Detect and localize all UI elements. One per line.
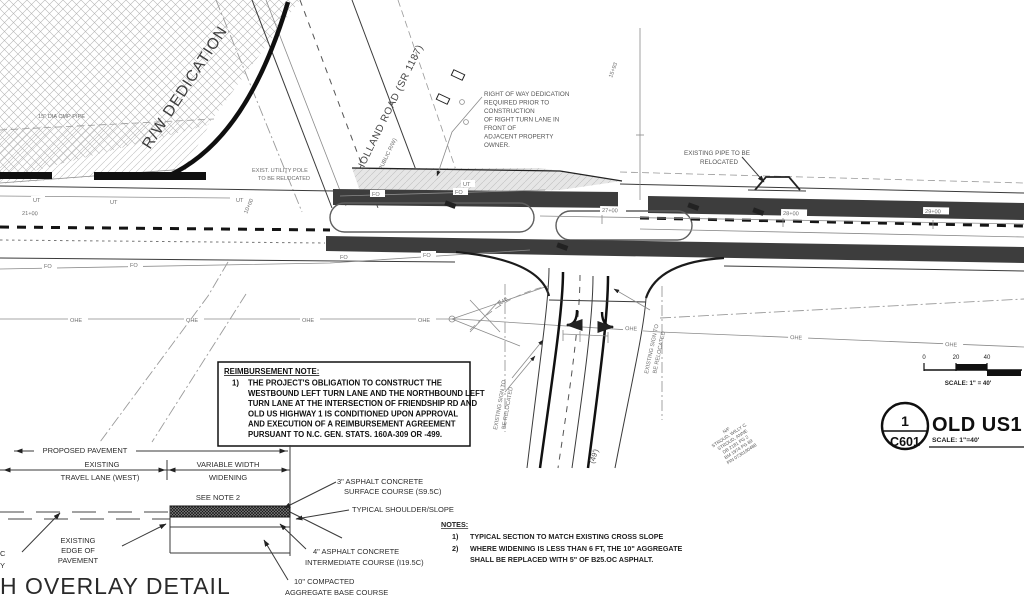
reimbursement-item-no: 1) [232, 379, 239, 388]
ohe-label: OHE [625, 326, 638, 333]
reimbursement-line-1: WESTBOUND LEFT TURN LANE AND THE NORTHBO… [248, 389, 485, 398]
note-1-no: 1) [452, 532, 459, 541]
row-note-line-1: REQUIRED PRIOR TO [484, 100, 549, 107]
fo-label: FO [130, 263, 138, 269]
see-note-label: SEE NOTE 2 [196, 493, 240, 502]
dim-proposed-pavement: PROPOSED PAVEMENT [43, 446, 128, 455]
ut-label: UT [236, 198, 244, 204]
dim-widening-line-1: VARIABLE WIDTH [197, 460, 260, 469]
reimbursement-note-box: REIMBURSEMENT NOTE: 1) THE PROJECT'S OBL… [218, 362, 485, 446]
pole-note-line-1: TO BE RELOCATED [258, 176, 310, 182]
section-notes: NOTES: 1) TYPICAL SECTION TO MATCH EXIST… [441, 520, 682, 564]
ut-label: UT [110, 200, 118, 206]
ohe-label: OHE [790, 335, 803, 342]
base-course-label-1: 10" COMPACTED [294, 577, 355, 586]
radius-label: R48 [498, 297, 510, 308]
station-label-29: 29+00 [925, 209, 941, 215]
reimbursement-line-0: THE PROJECT'S OBLIGATION TO CONSTRUCT TH… [248, 379, 442, 388]
pipe-note-line-0: EXISTING PIPE TO BE [684, 150, 750, 157]
detail-scale: SCALE: 1"=40' [932, 437, 980, 444]
note-1-text: TYPICAL SECTION TO MATCH EXISTING CROSS … [470, 532, 663, 541]
overlay-detail-title: H OVERLAY DETAIL [0, 573, 231, 598]
shoulder-slope-label: TYPICAL SHOULDER/SLOPE [352, 505, 454, 514]
scale-bar: 0 20 40 SCALE: 1" = 40' [922, 355, 1022, 387]
station-label-28: 28+00 [783, 211, 799, 217]
station-label-1593: 15+93 [608, 62, 619, 79]
intermediate-course-label-1: 4" ASPHALT CONCRETE [313, 547, 399, 556]
scale-tick-20: 20 [953, 355, 960, 361]
ut-label: UT [463, 182, 471, 188]
station-label-27: 27+00 [602, 208, 618, 214]
station-label-21: 21+00 [22, 211, 38, 217]
ohe-label: OHE [186, 318, 198, 324]
reimbursement-line-3: OLD US HIGHWAY 1 IS CONDITIONED UPON APP… [248, 409, 458, 418]
pipe-note-line-1: RELOCATED [700, 159, 738, 166]
sign-note-left: EXISTING SIGN TO BE RELOCATED [493, 379, 516, 432]
existing-edge-label-2: EDGE OF [61, 546, 95, 555]
surface-course-label-2: SURFACE COURSE (S9.5C) [344, 487, 442, 496]
ohe-label: OHE [302, 318, 314, 324]
station-1593-group: 15+93 [608, 62, 619, 79]
plan-sheet-svg: R/W DEDICATION 15" DIA CMP PIPE HOLLAND … [0, 0, 1024, 598]
existing-edge-label-3: PAVEMENT [58, 556, 99, 565]
overlay-detail: PROPOSED PAVEMENT EXISTING TRAVEL LANE (… [0, 444, 454, 598]
sheet-number: C601 [890, 435, 920, 449]
intermediate-course-label-2: INTERMEDIATE COURSE (I19.5C) [305, 558, 424, 567]
note-2-no: 2) [452, 544, 459, 553]
reimbursement-line-4: AND EXECUTION OF A REIMBURSEMENT AGREEME… [248, 420, 456, 429]
ohe-label: OHE [945, 342, 958, 349]
row-note-line-4: FRONT OF [484, 125, 516, 132]
overhead-electric-line [0, 286, 1024, 347]
pole-note-line-0: EXIST. UTILITY POLE [252, 168, 308, 174]
station-21-group: 21+00 [20, 209, 46, 217]
dim-existing-line-2: TRAVEL LANE (WEST) [61, 473, 140, 482]
rw-dedication-area [0, 0, 300, 184]
detail-title: OLD US1 H [932, 414, 1024, 436]
station-28-group: 28+00 [781, 209, 807, 218]
note-2-text-1: WHERE WIDENING IS LESS THAN 6 FT, THE 10… [470, 544, 682, 553]
detail-number: 1 [901, 413, 909, 429]
plan-sheet: R/W DEDICATION 15" DIA CMP PIPE HOLLAND … [0, 0, 1024, 598]
fo-label: FO [423, 253, 431, 259]
pipe-relocate-note: EXISTING PIPE TO BE RELOCATED [684, 150, 806, 191]
row-note-line-2: CONSTRUCTION [484, 108, 535, 115]
ut-label: UT [33, 198, 41, 204]
fo-label: FO [44, 264, 52, 270]
reimbursement-line-5: PURSUANT TO N.C. GEN. STATS. 160A-309 OR… [248, 430, 442, 439]
reimbursement-heading: REIMBURSEMENT NOTE: [224, 367, 319, 376]
utility-pole-note: EXIST. UTILITY POLE TO BE RELOCATED [252, 168, 310, 182]
fo-label: FO [455, 190, 463, 196]
base-course-label-2: AGGREGATE BASE COURSE [285, 588, 388, 597]
dim-widening-line-2: WIDENING [209, 473, 247, 482]
row-dedication-note: RIGHT OF WAY DEDICATION REQUIRED PRIOR T… [437, 91, 570, 176]
fo-label: FO [372, 192, 380, 198]
owner-note: N/F STROUD, WILLY C. STROUD, ANNE DB 218… [708, 417, 761, 467]
row-note-line-5: ADJACENT PROPERTY [484, 134, 554, 141]
reimbursement-line-2: TURN LANE AT THE INTERSECTION OF FRIENDS… [248, 399, 478, 408]
dim-existing-line-1: EXISTING [84, 460, 119, 469]
scale-tick-40: 40 [984, 355, 991, 361]
cutoff-fragment-c: C [0, 549, 6, 558]
fo-label: FO [340, 255, 348, 261]
ohe-label: OHE [418, 318, 430, 324]
scale-bar-label: SCALE: 1" = 40' [945, 380, 992, 387]
surface-course-label-1: 3" ASPHALT CONCRETE [337, 477, 423, 486]
note-2-text-2: SHALL BE REPLACED WITH 5" OF B25.OC ASPH… [470, 555, 653, 564]
cutoff-fragment-y: Y [0, 561, 5, 570]
station-27-group: 27+00 [600, 206, 626, 215]
radius-label-group: R48 [498, 297, 510, 308]
row-note-line-0: RIGHT OF WAY DEDICATION [484, 91, 570, 98]
ohe-label: OHE [70, 318, 82, 324]
scale-tick-0: 0 [922, 355, 926, 361]
station-29-group: 29+00 [923, 207, 949, 216]
pipe-dia-label: 15" DIA CMP PIPE [38, 114, 85, 120]
existing-edge-label-1: EXISTING [60, 536, 95, 545]
row-note-line-6: OWNER. [484, 142, 510, 149]
detail-callout: 1 C601 OLD US1 H SCALE: 1"=40' [882, 403, 1024, 449]
row-note-line-3: OF RIGHT TURN LANE IN [484, 117, 560, 124]
notes-heading: NOTES: [441, 520, 468, 529]
